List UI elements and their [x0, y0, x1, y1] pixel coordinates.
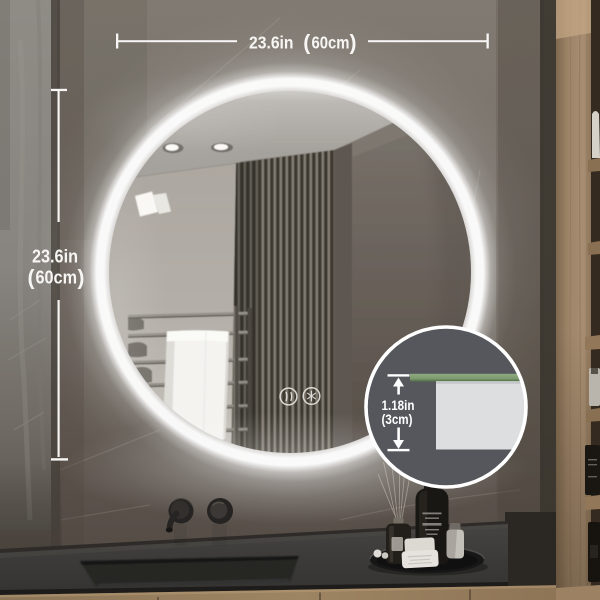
svg-text:): )	[78, 266, 85, 289]
svg-text:(: (	[28, 266, 35, 289]
svg-text:23.6in: 23.6in	[32, 247, 78, 267]
svg-text:): )	[350, 31, 357, 54]
svg-text:(: (	[303, 31, 310, 54]
svg-text:23.6in: 23.6in	[249, 33, 294, 53]
svg-text:60cm: 60cm	[312, 33, 350, 53]
svg-text:(3cm): (3cm)	[382, 412, 413, 427]
svg-text:60cm: 60cm	[36, 268, 78, 288]
